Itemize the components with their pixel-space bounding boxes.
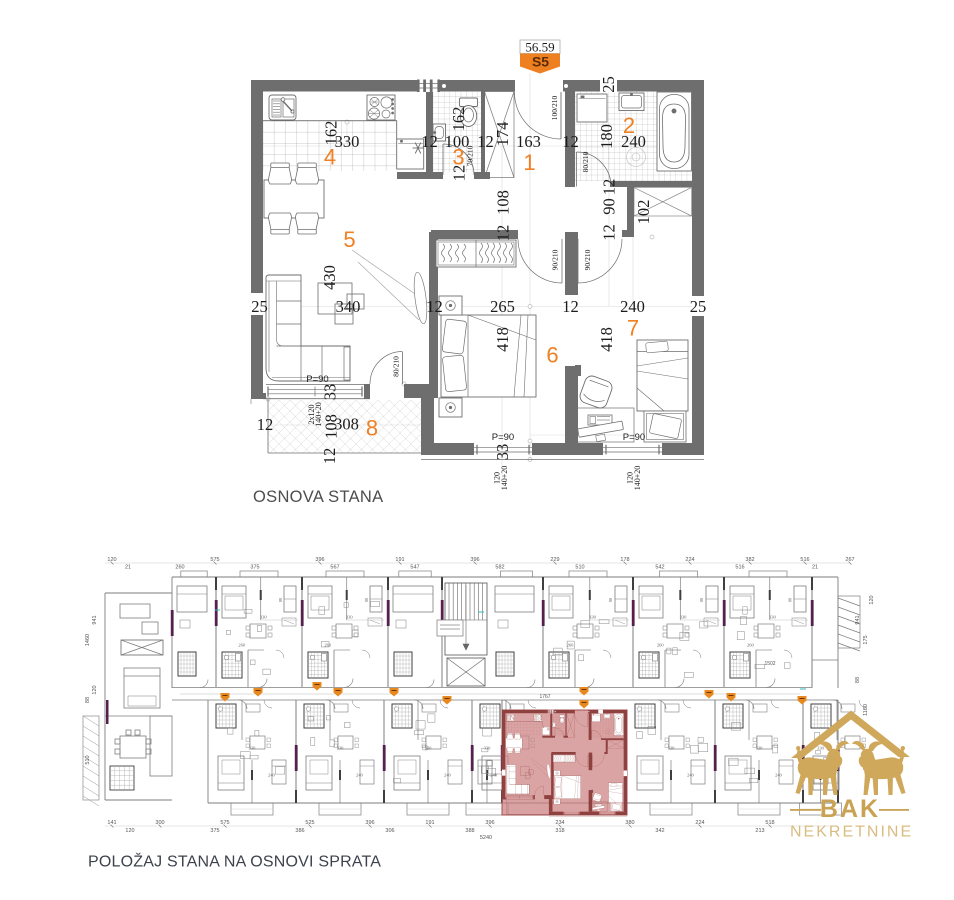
svg-text:240: 240 — [356, 773, 364, 778]
svg-text:260: 260 — [657, 643, 665, 648]
svg-text:418: 418 — [493, 327, 512, 352]
svg-text:12: 12 — [600, 179, 619, 196]
svg-text:1160: 1160 — [863, 704, 869, 716]
svg-text:516: 516 — [735, 565, 744, 571]
svg-text:12: 12 — [320, 448, 339, 465]
svg-text:516: 516 — [800, 557, 809, 563]
svg-text:140+20: 140+20 — [500, 466, 509, 491]
svg-text:575: 575 — [210, 557, 219, 563]
svg-text:330: 330 — [817, 746, 825, 751]
svg-text:260: 260 — [567, 643, 575, 648]
svg-text:265: 265 — [490, 297, 515, 316]
svg-text:1767: 1767 — [539, 694, 550, 700]
svg-text:1460: 1460 — [85, 634, 91, 646]
svg-text:518: 518 — [765, 820, 774, 826]
svg-text:4: 4 — [324, 145, 336, 170]
svg-text:141: 141 — [107, 820, 116, 826]
svg-text:S5: S5 — [532, 54, 549, 70]
svg-text:567: 567 — [330, 565, 339, 571]
svg-text:318: 318 — [555, 828, 564, 834]
svg-text:P=90: P=90 — [306, 374, 328, 385]
svg-text:330: 330 — [668, 746, 676, 751]
svg-text:88: 88 — [85, 697, 91, 703]
svg-text:375: 375 — [210, 828, 219, 834]
svg-text:547: 547 — [410, 565, 419, 571]
svg-text:396: 396 — [470, 557, 479, 563]
svg-text:213: 213 — [755, 828, 764, 834]
svg-text:388: 388 — [465, 828, 474, 834]
svg-text:380: 380 — [625, 820, 634, 826]
svg-text:330: 330 — [337, 746, 345, 751]
svg-text:260: 260 — [747, 643, 755, 648]
svg-text:12: 12 — [426, 297, 443, 316]
svg-text:330: 330 — [425, 746, 433, 751]
svg-text:25: 25 — [690, 297, 707, 316]
svg-text:267: 267 — [845, 557, 854, 563]
svg-text:240: 240 — [268, 773, 276, 778]
svg-text:162: 162 — [322, 121, 341, 146]
svg-text:300: 300 — [155, 820, 164, 826]
svg-text:340: 340 — [336, 297, 361, 316]
svg-text:3: 3 — [452, 145, 464, 170]
svg-text:88: 88 — [608, 598, 613, 602]
svg-text:306: 306 — [385, 828, 394, 834]
svg-text:80/210: 80/210 — [581, 151, 590, 172]
svg-text:375: 375 — [250, 565, 259, 571]
svg-text:174: 174 — [493, 122, 512, 147]
svg-text:140+20: 140+20 — [314, 402, 323, 427]
svg-text:191: 191 — [425, 820, 434, 826]
svg-text:P=90: P=90 — [492, 432, 514, 443]
svg-text:108: 108 — [494, 190, 513, 215]
svg-text:575: 575 — [220, 820, 229, 826]
svg-text:120: 120 — [125, 828, 134, 834]
svg-text:POLOŽAJ STANA NA OSNOVI SPRATA: POLOŽAJ STANA NA OSNOVI SPRATA — [88, 852, 381, 871]
svg-text:386: 386 — [295, 828, 304, 834]
svg-text:OSNOVA STANA: OSNOVA STANA — [253, 488, 383, 506]
svg-text:102: 102 — [634, 200, 653, 225]
svg-text:100/210: 100/210 — [550, 95, 559, 120]
svg-text:8: 8 — [366, 416, 378, 441]
svg-text:191: 191 — [395, 557, 404, 563]
svg-text:396: 396 — [485, 820, 494, 826]
svg-text:330: 330 — [249, 746, 257, 751]
svg-text:90/210: 90/210 — [583, 249, 592, 270]
svg-text:525: 525 — [305, 820, 314, 826]
svg-text:260: 260 — [324, 643, 332, 648]
svg-text:90/210: 90/210 — [551, 249, 560, 270]
svg-text:162: 162 — [449, 107, 468, 132]
svg-text:542: 542 — [655, 565, 664, 571]
svg-text:12: 12 — [494, 225, 513, 242]
svg-text:90: 90 — [600, 198, 619, 215]
svg-text:88: 88 — [364, 598, 369, 602]
svg-text:88: 88 — [855, 677, 861, 683]
svg-text:12: 12 — [562, 297, 579, 316]
svg-text:12: 12 — [600, 224, 619, 241]
svg-text:224: 224 — [695, 820, 704, 826]
svg-text:120: 120 — [107, 557, 116, 563]
svg-text:582: 582 — [495, 565, 504, 571]
svg-text:330: 330 — [769, 615, 777, 620]
svg-text:12: 12 — [562, 132, 579, 151]
svg-text:12: 12 — [421, 132, 438, 151]
svg-text:7: 7 — [627, 316, 639, 341]
svg-text:88: 88 — [699, 598, 704, 602]
svg-text:330: 330 — [346, 615, 354, 620]
svg-text:330: 330 — [260, 615, 268, 620]
svg-text:5240: 5240 — [480, 835, 492, 841]
svg-text:140+20: 140+20 — [633, 466, 642, 491]
svg-text:240: 240 — [490, 773, 498, 778]
svg-text:2: 2 — [623, 113, 635, 138]
svg-text:330: 330 — [589, 615, 597, 620]
svg-text:12: 12 — [477, 132, 494, 151]
svg-text:120: 120 — [869, 595, 875, 604]
svg-text:5: 5 — [343, 227, 355, 252]
svg-text:342: 342 — [655, 828, 664, 834]
svg-text:308: 308 — [334, 415, 359, 434]
svg-text:240: 240 — [775, 773, 783, 778]
svg-text:BAK: BAK — [820, 795, 880, 823]
svg-text:6: 6 — [546, 343, 558, 368]
svg-text:88: 88 — [788, 598, 793, 602]
svg-text:70/210: 70/210 — [466, 145, 475, 166]
svg-text:88: 88 — [278, 598, 283, 602]
svg-text:P=90: P=90 — [623, 432, 645, 443]
svg-text:510: 510 — [85, 755, 91, 764]
svg-text:163: 163 — [516, 132, 541, 151]
svg-text:56.59: 56.59 — [525, 40, 554, 55]
svg-text:510: 510 — [575, 565, 584, 571]
svg-text:941: 941 — [855, 615, 861, 624]
svg-text:175: 175 — [863, 635, 869, 644]
svg-text:260: 260 — [175, 565, 184, 571]
svg-text:330: 330 — [756, 746, 764, 751]
svg-text:21: 21 — [125, 565, 131, 571]
svg-text:1: 1 — [523, 150, 535, 175]
svg-text:178: 178 — [620, 557, 629, 563]
svg-text:12: 12 — [257, 415, 274, 434]
svg-text:224: 224 — [685, 557, 694, 563]
svg-text:180: 180 — [597, 124, 616, 149]
svg-text:33: 33 — [321, 384, 340, 401]
svg-text:1502: 1502 — [764, 661, 775, 667]
svg-text:25: 25 — [599, 76, 618, 93]
svg-text:21: 21 — [812, 565, 818, 571]
svg-text:430: 430 — [320, 265, 339, 290]
svg-text:396: 396 — [365, 820, 374, 826]
svg-text:260: 260 — [238, 643, 246, 648]
svg-text:33: 33 — [493, 444, 512, 461]
svg-text:330: 330 — [680, 615, 688, 620]
svg-text:396: 396 — [315, 557, 324, 563]
svg-text:25: 25 — [251, 297, 268, 316]
svg-text:418: 418 — [597, 327, 616, 352]
svg-text:240: 240 — [444, 773, 452, 778]
svg-text:941: 941 — [92, 615, 98, 624]
svg-text:120: 120 — [92, 685, 98, 694]
svg-text:NEKRETNINE: NEKRETNINE — [790, 824, 913, 841]
svg-text:240: 240 — [620, 297, 645, 316]
svg-text:234: 234 — [555, 820, 564, 826]
svg-text:382: 382 — [745, 557, 754, 563]
svg-text:229: 229 — [550, 557, 559, 563]
svg-text:240: 240 — [687, 773, 695, 778]
svg-text:80/210: 80/210 — [392, 356, 401, 377]
svg-text:330: 330 — [484, 746, 492, 751]
